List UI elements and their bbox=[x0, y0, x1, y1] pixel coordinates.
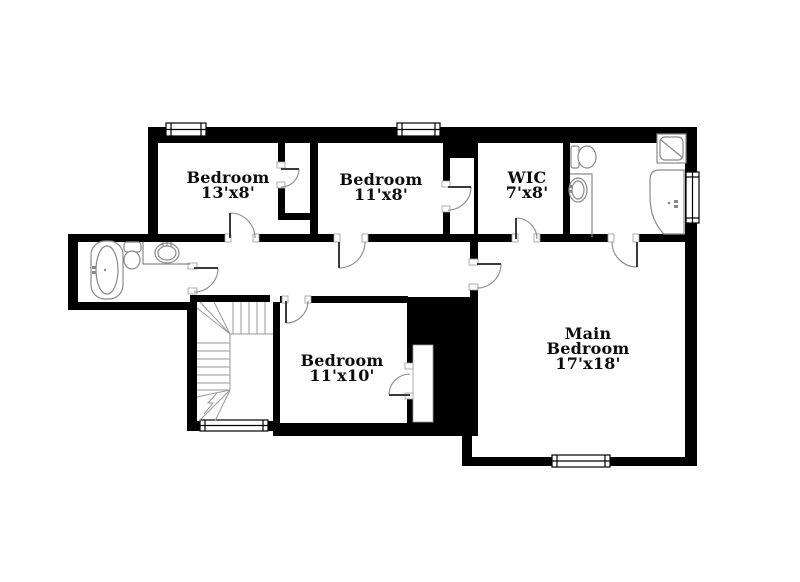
room-label-bedroom-1: Bedroom 13'x8' bbox=[187, 170, 270, 200]
door-arc bbox=[339, 242, 365, 268]
exterior-wall-left bbox=[68, 234, 78, 310]
window bbox=[200, 420, 268, 431]
door-arc bbox=[286, 301, 308, 323]
stair-break-mark bbox=[204, 393, 217, 414]
room-label-wic: WIC 7'x8' bbox=[506, 170, 549, 200]
bedroom3-left-wall bbox=[273, 302, 280, 423]
bathtub bbox=[91, 241, 123, 299]
door-arc bbox=[389, 374, 410, 395]
exterior-wall-upper-left bbox=[148, 127, 158, 241]
room-dimensions: 11'x8' bbox=[340, 187, 423, 202]
door-arc bbox=[448, 187, 471, 210]
bedroom3-top-wall bbox=[308, 296, 408, 303]
door-arc bbox=[477, 264, 501, 288]
corner-tub bbox=[650, 170, 684, 234]
door-arc bbox=[230, 213, 255, 238]
closet1-wall bbox=[310, 143, 318, 242]
wall-segment bbox=[537, 234, 612, 242]
sink-vanity bbox=[143, 242, 190, 264]
hallway-bottom-wall bbox=[190, 295, 270, 302]
floor-plan: Bedroom 13'x8' Bedroom 11'x8' WIC 7'x8' … bbox=[0, 0, 800, 582]
closet3-door-gap bbox=[407, 368, 413, 396]
wall-segment bbox=[68, 234, 228, 242]
left-bathroom-fixtures bbox=[91, 241, 190, 299]
room-label-bedroom-3: Bedroom 11'x10' bbox=[301, 353, 384, 383]
room-label-bedroom-2: Bedroom 11'x8' bbox=[340, 172, 423, 202]
wall-segment bbox=[366, 234, 515, 242]
closet1-wall bbox=[278, 186, 285, 213]
toilet bbox=[571, 146, 596, 168]
chimney-block bbox=[450, 132, 478, 158]
toilet bbox=[124, 242, 141, 269]
closet3 bbox=[413, 345, 433, 422]
floor-plan-drawing bbox=[0, 0, 800, 582]
staircase bbox=[197, 302, 273, 421]
room-dimensions: 11'x10' bbox=[301, 368, 384, 383]
bedroom2-right-wall bbox=[443, 143, 450, 186]
room-label-main-bedroom: Main Bedroom 17'x18' bbox=[542, 326, 634, 371]
wall-segment bbox=[256, 234, 337, 242]
door-arc bbox=[612, 242, 637, 267]
bathroom-bottom-wall bbox=[68, 302, 197, 310]
wall-segment bbox=[638, 234, 697, 242]
door-arc bbox=[194, 268, 218, 292]
room-name: Main Bedroom bbox=[542, 326, 634, 356]
shower bbox=[657, 134, 686, 163]
room-dimensions: 13'x8' bbox=[187, 185, 270, 200]
window bbox=[397, 123, 440, 136]
room-dimensions: 17'x18' bbox=[542, 356, 634, 371]
main-bathroom-fixtures bbox=[569, 134, 686, 237]
window bbox=[552, 455, 610, 467]
room-dimensions: 7'x8' bbox=[506, 185, 549, 200]
stairwell-left-wall bbox=[187, 302, 197, 431]
bedroom2-right-wall bbox=[443, 210, 450, 242]
sink-vanity bbox=[569, 174, 592, 237]
closet2-wall bbox=[474, 158, 478, 236]
window bbox=[686, 172, 699, 223]
window bbox=[166, 123, 206, 136]
